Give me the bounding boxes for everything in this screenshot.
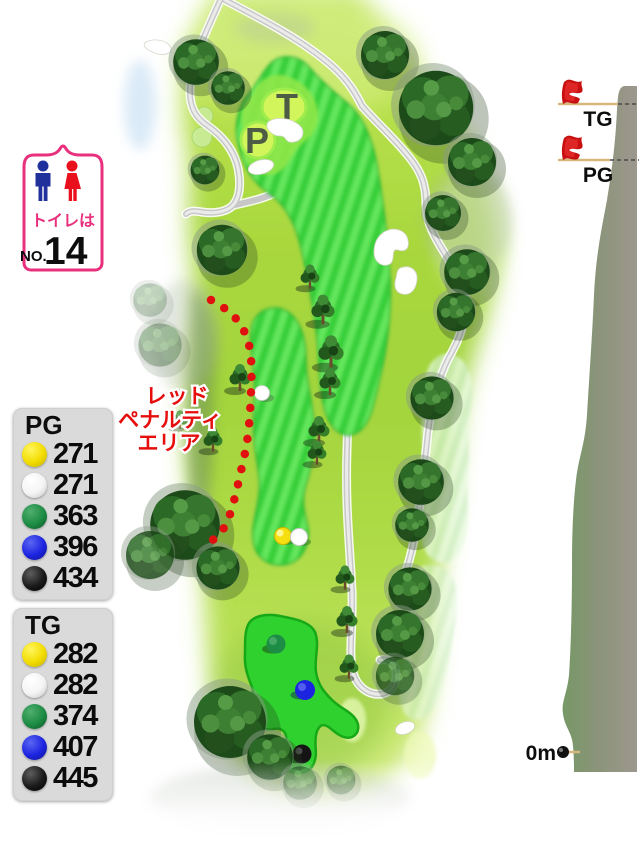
- tee-dot-white-icon: [22, 673, 47, 698]
- golf-hole-map-screen: T P: [0, 0, 641, 854]
- distance-row: 445: [22, 763, 113, 794]
- tee-dot-green-icon: [22, 504, 47, 529]
- distance-value: 363: [53, 500, 97, 533]
- panel-pg-header: PG: [25, 411, 113, 439]
- distance-value: 396: [53, 531, 97, 564]
- distance-value: 434: [53, 562, 97, 595]
- elevation-profile: TG PG 0m: [526, 80, 639, 772]
- tee-dot-blue-icon: [22, 735, 47, 760]
- distance-row: 282: [22, 670, 113, 701]
- white-ball-marker: [255, 386, 270, 401]
- tee-dot-white-icon: [22, 473, 47, 498]
- distance-row: 282: [22, 639, 113, 670]
- distance-row: 363: [22, 501, 113, 532]
- flag-icon: [562, 80, 583, 104]
- distance-value: 407: [53, 731, 97, 764]
- distance-row: 271: [22, 470, 113, 501]
- tee-dot-blue-icon: [22, 535, 47, 560]
- toilet-sign: トイレは NO. 14: [20, 146, 102, 273]
- tee-marker-yellow: [275, 528, 292, 545]
- tee-dot-yellow-icon: [22, 442, 47, 467]
- bunker-icon: [395, 267, 417, 295]
- tee-dot-green-icon: [22, 704, 47, 729]
- panel-tg-header: TG: [25, 611, 113, 639]
- tee-marker-white: [291, 529, 308, 546]
- distance-value: 271: [53, 438, 97, 471]
- distance-panel-pg: PG 271 271 363 396 434: [13, 408, 113, 600]
- distance-row: 396: [22, 532, 113, 563]
- tee-dot-black-icon: [22, 766, 47, 791]
- tee-dot-black-icon: [22, 566, 47, 591]
- bunker-icon: [144, 40, 171, 55]
- toilet-sign-number: 14: [44, 230, 88, 273]
- penalty-label-line1: レッド: [146, 385, 209, 408]
- flag-label-pg: PG: [583, 164, 613, 187]
- distance-row: 407: [22, 732, 113, 763]
- distance-value: 445: [53, 762, 97, 795]
- penalty-label-line3: エリア: [138, 432, 201, 455]
- distance-row: 271: [22, 439, 113, 470]
- toilet-sign-text: トイレは: [31, 213, 95, 230]
- tree-icon: [130, 280, 174, 326]
- flag-label-tg: TG: [583, 108, 612, 131]
- distance-value: 271: [53, 469, 97, 502]
- tee-dot-yellow-icon: [22, 642, 47, 667]
- distance-value: 282: [53, 669, 97, 702]
- elevation-strip: [563, 86, 637, 772]
- distance-value: 374: [53, 700, 97, 733]
- penalty-label-line2: ペナルティ: [118, 409, 222, 432]
- distance-row: 374: [22, 701, 113, 732]
- distance-row: 434: [22, 563, 113, 594]
- origin-label: 0m: [526, 742, 556, 765]
- pond: [124, 60, 156, 150]
- distance-panel-tg: TG 282 282 374 407 445: [13, 608, 113, 801]
- toilet-sign-no-prefix: NO.: [20, 248, 47, 265]
- flag-icon: [562, 136, 583, 160]
- green-label-p: P: [245, 120, 269, 161]
- distance-value: 282: [53, 638, 97, 671]
